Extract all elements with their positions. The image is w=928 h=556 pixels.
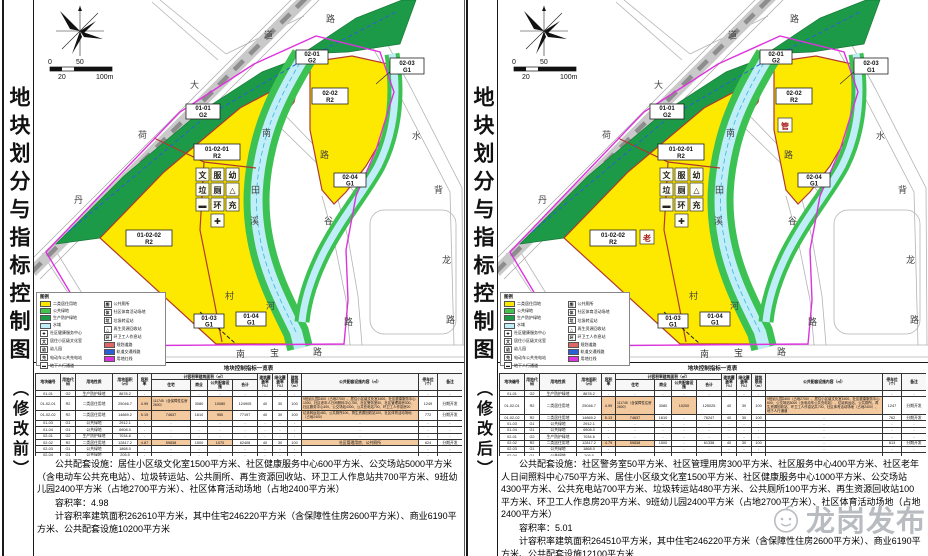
svg-text:G2: G2 — [199, 113, 208, 119]
svg-text:道: 道 — [264, 29, 273, 40]
elder-daycare-icon: 老 — [640, 230, 654, 244]
legend-item: △再生资源回收站 — [104, 326, 164, 333]
svg-text:G1: G1 — [810, 182, 819, 188]
svg-text:垃: 垃 — [663, 185, 671, 195]
indicator-table-section: 地块控制指标一览表 地块编号用地代码用地性质用地面积（㎡）容积率计容积率建筑面积… — [499, 364, 926, 456]
parcel-label-0201: 02-01 G2 — [296, 50, 328, 65]
svg-text:环: 环 — [678, 201, 686, 210]
svg-text:路: 路 — [326, 13, 335, 24]
svg-text:河: 河 — [730, 300, 739, 311]
svg-text:厕: 厕 — [214, 186, 222, 195]
svg-text:R2: R2 — [790, 98, 798, 104]
legend-item: 二类居住用地 — [40, 301, 100, 307]
svg-text:50: 50 — [76, 59, 84, 66]
svg-text:02-01: 02-01 — [768, 52, 784, 58]
svg-text:大: 大 — [190, 79, 199, 90]
legend-item: 垃垃圾转运站 — [568, 317, 628, 324]
svg-text:01-04: 01-04 — [707, 314, 723, 320]
svg-text:G2: G2 — [308, 59, 317, 65]
legend-item: 水域 — [40, 323, 100, 329]
scale-bar: 0 50 20 100m — [48, 59, 114, 81]
map-legend: 图例 二类居住用地公共绿地生产防护绿地水域✚社区健康服务中心文居住小区级文化室幼… — [36, 292, 166, 366]
svg-text:荷: 荷 — [602, 130, 611, 140]
svg-text:幼: 幼 — [229, 170, 237, 180]
svg-text:大: 大 — [654, 79, 663, 90]
svg-text:背: 背 — [898, 184, 907, 195]
svg-text:道: 道 — [728, 29, 737, 40]
management-room-icon: 管 — [778, 118, 792, 132]
legend-item: ✚社区健康服务中心 — [40, 330, 100, 337]
svg-text:荷: 荷 — [138, 130, 147, 140]
svg-text:0: 0 — [512, 59, 516, 66]
legend-title: 图例 — [504, 295, 627, 300]
svg-text:充: 充 — [693, 200, 701, 210]
notes-floor-area: 计容积率建筑面积264510平方米，其中住宅246220平方米（含保障性住房26… — [501, 535, 923, 556]
legend-item: 文居住小区级文化室 — [40, 338, 100, 345]
svg-text:02-04: 02-04 — [806, 175, 822, 181]
parcel-0201-green — [302, 0, 416, 54]
svg-text:G1: G1 — [403, 68, 412, 74]
legend-item: 生产防护绿地 — [40, 315, 100, 321]
notes-far: 容积率：4.98 — [37, 497, 459, 510]
svg-text:R2: R2 — [326, 98, 334, 104]
svg-text:背: 背 — [434, 184, 443, 195]
svg-text:环: 环 — [214, 201, 222, 210]
legend-title: 图例 — [40, 295, 163, 300]
svg-text:老: 老 — [642, 233, 651, 243]
parcel-label-0103: 01-03 G1 — [658, 314, 688, 329]
legend-right-column: 厕公共厕所体社区体育活动场地垃垃圾转运站△再生资源回收站环环卫工人作息站规划道路… — [568, 301, 628, 371]
svg-text:垃: 垃 — [199, 185, 207, 195]
legend-left-column: 二类居住用地公共绿地生产防护绿地水域✚社区健康服务中心文居住小区级文化室幼幼儿园… — [504, 301, 564, 371]
svg-text:路: 路 — [808, 316, 817, 327]
svg-text:路: 路 — [790, 13, 799, 24]
legend-item: △再生资源回收站 — [568, 326, 628, 333]
legend-item: 二类居住用地 — [504, 301, 564, 307]
svg-text:南: 南 — [236, 348, 245, 359]
parcel-label-0201: 02-01 G2 — [760, 50, 792, 65]
svg-text:△: △ — [229, 186, 236, 195]
notes-facilities: 公共配套设施：社区警务室50平方米、社区管理用房300平方米、社区服务中心400… — [501, 458, 923, 521]
parcel-label-0204: 02-04 G1 — [334, 173, 366, 188]
indicator-table: 地块编号用地代码用地性质用地面积（㎡）容积率计容积率建筑面积（㎡）建筑覆盖率（%… — [35, 373, 462, 456]
sheet-title-text: 地块划分与指标控制图 — [471, 86, 494, 366]
indicator-table: 地块编号用地代码用地性质用地面积（㎡）容积率计容积率建筑面积（㎡）建筑覆盖率（%… — [499, 373, 926, 456]
svg-text:02-01: 02-01 — [304, 52, 320, 58]
compass-rose-icon — [56, 6, 104, 56]
svg-text:R2: R2 — [145, 240, 153, 246]
table-row: 01-02-01R2二类居住用地25046.74.99111745（含保障性住房… — [36, 397, 463, 411]
svg-text:充: 充 — [229, 200, 237, 210]
svg-text:01-01: 01-01 — [195, 106, 211, 112]
svg-text:谷: 谷 — [788, 216, 797, 226]
legend-item: 文居住小区级文化室 — [504, 338, 564, 345]
svg-text:龙: 龙 — [906, 254, 915, 265]
svg-text:田: 田 — [715, 185, 724, 195]
svg-text:路: 路 — [313, 346, 322, 357]
panel-before: 0 50 20 100m 丹 荷 大 道 路 南 路 田 溪 河 村 谷 路 水… — [2, 0, 465, 556]
parcel-label-0101: 01-01 G2 — [650, 104, 684, 119]
legend-item: 轨道交通线路 — [568, 349, 628, 355]
svg-text:宝: 宝 — [734, 347, 743, 358]
legend-item: ▬地下人行通道 — [504, 362, 564, 369]
legend-item: 轨道交通线路 — [104, 349, 164, 355]
svg-text:路: 路 — [910, 314, 919, 325]
sheet-title-revision: （修改前） — [10, 380, 27, 480]
svg-text:01-02-02: 01-02-02 — [601, 233, 626, 239]
legend-item: 环环卫工人作息站 — [568, 334, 628, 341]
svg-text:02-04: 02-04 — [342, 175, 358, 181]
legend-item: 公共绿地 — [504, 308, 564, 314]
svg-text:✚: ✚ — [678, 217, 685, 226]
svg-text:20: 20 — [58, 74, 66, 81]
table-row: 01-02-02R2二类居住用地14869.25.197463716109507… — [36, 411, 463, 421]
legend-item: ✚社区健康服务中心 — [504, 330, 564, 337]
sheet-title-text: 地块划分与指标控制图 — [7, 86, 30, 366]
legend-item: 体社区体育活动场地 — [104, 309, 164, 316]
svg-text:01-02-01: 01-02-01 — [669, 147, 694, 153]
legend-item: 环环卫工人作息站 — [104, 334, 164, 341]
svg-text:01-04: 01-04 — [243, 314, 259, 320]
svg-text:路: 路 — [777, 346, 786, 357]
svg-text:0: 0 — [48, 59, 52, 66]
notes-facilities: 公共配套设施：居住小区级文化室1500平方米、社区健康服务中心600平方米、公交… — [37, 458, 459, 496]
svg-text:龙: 龙 — [442, 254, 451, 265]
parcel-0201-green — [766, 0, 880, 54]
svg-text:01-02-01: 01-02-01 — [205, 147, 230, 153]
legend-item: 用地红线 — [104, 356, 164, 362]
compass-rose-icon — [520, 6, 568, 56]
legend-item: 用地红线 — [568, 356, 628, 362]
svg-text:田: 田 — [251, 185, 260, 195]
svg-text:村: 村 — [689, 290, 698, 301]
legend-item: 充电动车公共充电站 — [40, 354, 100, 361]
notes-floor-area: 计容积率建筑面积262610平方米，其中住宅246220平方米（含保障性住房26… — [37, 510, 459, 535]
svg-text:丹: 丹 — [74, 195, 83, 205]
svg-text:厕: 厕 — [678, 186, 686, 195]
svg-text:02-03: 02-03 — [399, 61, 415, 67]
parcel-label-0202: 02-02 R2 — [776, 88, 812, 104]
svg-text:丹: 丹 — [538, 195, 547, 205]
table-row: 02-04G1公共绿地205.5----------- — [500, 453, 927, 456]
svg-text:G1: G1 — [247, 321, 256, 327]
legend-item: 厕公共厕所 — [104, 301, 164, 308]
table-row: 01-02-01R2二类居住用地25046.74.99111745（含保障性住房… — [500, 397, 927, 415]
svg-text:南: 南 — [726, 127, 735, 138]
svg-text:G1: G1 — [867, 68, 876, 74]
parcel-label-010202: 01-02-02 R2 — [126, 230, 172, 246]
svg-text:R2: R2 — [677, 154, 685, 160]
parcel-label-010202: 01-02-02 R2 — [590, 230, 636, 246]
svg-text:✚: ✚ — [214, 217, 221, 226]
notes-far: 容积率：5.01 — [501, 522, 923, 535]
svg-text:宝: 宝 — [270, 347, 279, 358]
svg-text:01-01: 01-01 — [659, 106, 675, 112]
parcel-label-0204: 02-04 G1 — [798, 173, 830, 188]
svg-text:G2: G2 — [663, 113, 672, 119]
legend-item: 体社区体育活动场地 — [568, 309, 628, 316]
svg-text:02-03: 02-03 — [863, 61, 879, 67]
table-row: 02-04G1公共绿地205.5----------- — [36, 452, 463, 456]
svg-text:服: 服 — [678, 171, 687, 180]
notes-section: 公共配套设施：社区警务室50平方米、社区管理用房300平方米、社区服务中心400… — [501, 458, 923, 554]
panel-after: 0 50 20 100m 丹 荷 大 道 路 南 路 田 溪 河 村 谷 路 水… — [466, 0, 928, 556]
parcel-label-0202: 02-02 R2 — [312, 88, 348, 104]
notes-section: 公共配套设施：居住小区级文化室1500平方米、社区健康服务中心600平方米、公交… — [37, 458, 459, 554]
svg-text:50: 50 — [540, 59, 548, 66]
svg-text:南: 南 — [262, 127, 271, 138]
indicator-table-section: 地块控制指标一览表 地块编号用地代码用地性质用地面积（㎡）容积率计容积率建筑面积… — [35, 364, 462, 456]
svg-text:01-03: 01-03 — [665, 316, 681, 322]
svg-text:20: 20 — [522, 74, 530, 81]
svg-text:01-02-02: 01-02-02 — [137, 233, 162, 239]
legend-item: 幼幼儿园 — [40, 346, 100, 353]
svg-text:路: 路 — [320, 149, 329, 160]
parcel-label-0104: 01-04 G1 — [236, 312, 266, 327]
svg-text:路: 路 — [446, 314, 455, 325]
svg-text:南: 南 — [700, 348, 709, 359]
svg-text:▬: ▬ — [663, 201, 671, 210]
svg-text:01-03: 01-03 — [201, 316, 217, 322]
parcel-label-0103: 01-03 G1 — [194, 314, 224, 329]
svg-text:路: 路 — [784, 149, 793, 160]
legend-left-column: 二类居住用地公共绿地生产防护绿地水域✚社区健康服务中心文居住小区级文化室幼幼儿园… — [40, 301, 100, 371]
sheet-title-vertical: 地块划分与指标控制图 （修改后） — [468, 0, 498, 556]
legend-right-column: 厕公共厕所体社区体育活动场地垃垃圾转运站△再生资源回收站环环卫工人作息站规划道路… — [104, 301, 164, 371]
svg-text:溪: 溪 — [714, 215, 723, 226]
svg-text:路: 路 — [344, 316, 353, 327]
svg-text:溪: 溪 — [250, 215, 259, 226]
svg-text:G1: G1 — [711, 321, 720, 327]
sheet-title-revision: （修改后） — [474, 380, 491, 480]
svg-text:100m: 100m — [560, 74, 578, 81]
svg-text:G1: G1 — [346, 182, 355, 188]
svg-text:02-02: 02-02 — [786, 91, 802, 97]
svg-text:G2: G2 — [772, 59, 781, 65]
svg-text:G1: G1 — [669, 323, 678, 329]
svg-text:水: 水 — [412, 130, 421, 141]
sheet-title-vertical: 地块划分与指标控制图 （修改前） — [4, 0, 34, 556]
svg-text:河: 河 — [266, 300, 275, 311]
map-legend: 图例 二类居住用地公共绿地生产防护绿地水域✚社区健康服务中心文居住小区级文化室幼… — [500, 292, 630, 366]
svg-text:水: 水 — [876, 130, 885, 141]
svg-text:R2: R2 — [609, 240, 617, 246]
scale-bar: 0 50 20 100m — [512, 59, 578, 81]
svg-text:服: 服 — [214, 171, 223, 180]
legend-item: 水域 — [504, 323, 564, 329]
legend-item: 生产防护绿地 — [504, 315, 564, 321]
parcel-label-0104: 01-04 G1 — [700, 312, 730, 327]
legend-item: ▬地下人行通道 — [40, 362, 100, 369]
legend-item: 充电动车公共充电站 — [504, 354, 564, 361]
svg-text:100m: 100m — [96, 74, 114, 81]
legend-item: 幼幼儿园 — [504, 346, 564, 353]
parcel-label-010201: 01-02-01 R2 — [658, 144, 704, 160]
svg-text:文: 文 — [199, 170, 208, 180]
legend-item: 规划道路 — [568, 342, 628, 348]
legend-item: 公共绿地 — [40, 308, 100, 314]
svg-text:▬: ▬ — [199, 201, 207, 210]
svg-text:G1: G1 — [205, 323, 214, 329]
svg-text:幼: 幼 — [693, 170, 701, 180]
svg-text:管: 管 — [781, 121, 789, 131]
svg-text:02-02: 02-02 — [322, 91, 338, 97]
svg-text:R2: R2 — [213, 154, 221, 160]
parcel-label-0101: 01-01 G2 — [186, 104, 220, 119]
svg-text:谷: 谷 — [324, 216, 333, 226]
svg-text:△: △ — [693, 186, 700, 195]
svg-text:文: 文 — [663, 170, 672, 180]
legend-item: 规划道路 — [104, 342, 164, 348]
legend-item: 厕公共厕所 — [568, 301, 628, 308]
svg-text:村: 村 — [225, 290, 234, 301]
parcel-label-010201: 01-02-01 R2 — [194, 144, 240, 160]
planning-document: 0 50 20 100m 丹 荷 大 道 路 南 路 田 溪 河 村 谷 路 水… — [0, 0, 928, 556]
legend-item: 垃垃圾转运站 — [104, 317, 164, 324]
